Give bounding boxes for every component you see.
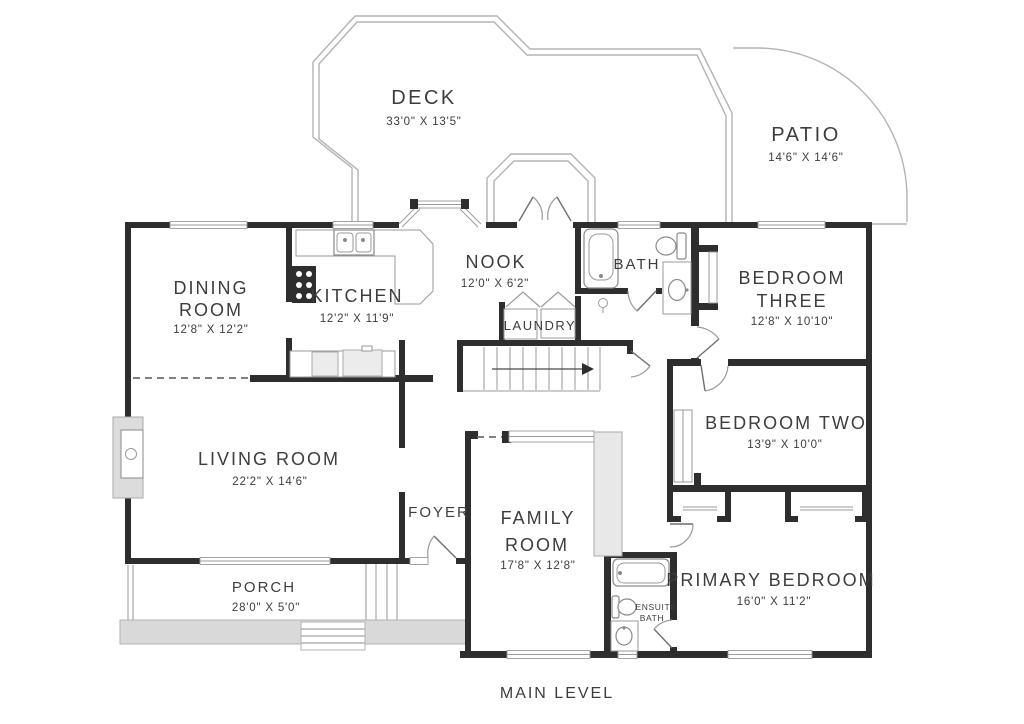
family-room-dims: 17'8" X 12'8" [500, 560, 575, 572]
bath-label: BATH [614, 256, 661, 273]
french-doors-nook [519, 197, 571, 221]
dining-room-label-1: DINING [174, 278, 249, 298]
ensuite-sink-icon [611, 621, 638, 651]
nook-label: NOOK [465, 252, 526, 272]
porch-label: PORCH [232, 579, 296, 596]
patio-dims: 14'6" X 14'6" [768, 152, 843, 164]
ensuite-door [654, 620, 672, 648]
nook-dims: 12'0" X 6'2" [461, 278, 529, 290]
bedroom-three-dims: 12'8" X 10'10" [751, 316, 834, 328]
deck-landing-outline [487, 154, 595, 222]
floor-plan-page: DECK 33'0" X 13'5" PATIO 14'6" X 14'6" D… [0, 0, 1024, 724]
floor-drain-icon [599, 299, 608, 314]
deck-outline [313, 16, 732, 222]
stair-closet-door [631, 351, 650, 377]
family-room-label-2: ROOM [505, 535, 569, 555]
laundry-label: LAUNDRY [504, 318, 576, 333]
bath-vanity-icon [663, 262, 691, 314]
kitchen-label: KITCHEN [310, 286, 403, 306]
primary-bedroom-door [670, 524, 693, 547]
primary-bedroom-dims: 16'0" X 11'2" [737, 596, 812, 608]
ensuite-label-2: BATH [640, 613, 664, 623]
foyer-label: FOYER [408, 504, 470, 521]
deck-dims: 33'0" X 13'5" [386, 116, 461, 128]
bedroom-two-dims: 13'9" X 10'0" [747, 439, 822, 451]
toilet-icon [656, 233, 686, 259]
deck-label: DECK [391, 87, 457, 109]
dining-room-dims: 12'8" X 12'2" [173, 324, 248, 336]
laundry-bifold-doors [506, 292, 575, 307]
kitchen-sink-icon [334, 230, 374, 255]
porch-dims: 28'0" X 5'0" [232, 602, 300, 614]
labels: DECK 33'0" X 13'5" PATIO 14'6" X 14'6" D… [173, 87, 875, 702]
kitchen-dims: 12'2" X 11'9" [320, 313, 395, 325]
ensuite-tub-icon [613, 559, 669, 586]
family-room-label-1: FAMILY [501, 508, 576, 528]
primary-bedroom-label: PRIMARY BEDROOM [666, 570, 875, 590]
dining-room-label-2: ROOM [179, 300, 243, 320]
ensuite-toilet-icon [612, 596, 636, 618]
chimney [594, 432, 622, 556]
bedroom-three-label-1: BEDROOM [738, 268, 845, 288]
living-room-dims: 22'2" X 14'6" [232, 476, 307, 488]
front-door-sidelite [410, 558, 428, 565]
bedroom-two-label: BEDROOM TWO [705, 413, 867, 433]
living-room-label: LIVING ROOM [198, 449, 340, 469]
ensuite-label-1: ENSUITE [635, 602, 676, 612]
bedroom-three-closet-door [709, 252, 717, 303]
patio-label: PATIO [771, 124, 841, 146]
bedroom-three-door [697, 327, 719, 358]
fireplace-icon [113, 417, 143, 498]
bay-window [399, 199, 481, 227]
stairs [463, 347, 600, 391]
front-door [428, 536, 456, 558]
closet-shelves [683, 507, 853, 510]
bath-door [628, 291, 656, 311]
dashed-openings [133, 378, 502, 437]
plan-title: MAIN LEVEL [500, 685, 614, 702]
floor-plan: DECK 33'0" X 13'5" PATIO 14'6" X 14'6" D… [0, 0, 1024, 724]
bedroom-two-closet-door [674, 410, 692, 482]
front-steps [366, 564, 397, 620]
bedroom-three-label-2: THREE [756, 291, 827, 311]
bedroom-two-door [701, 365, 728, 391]
